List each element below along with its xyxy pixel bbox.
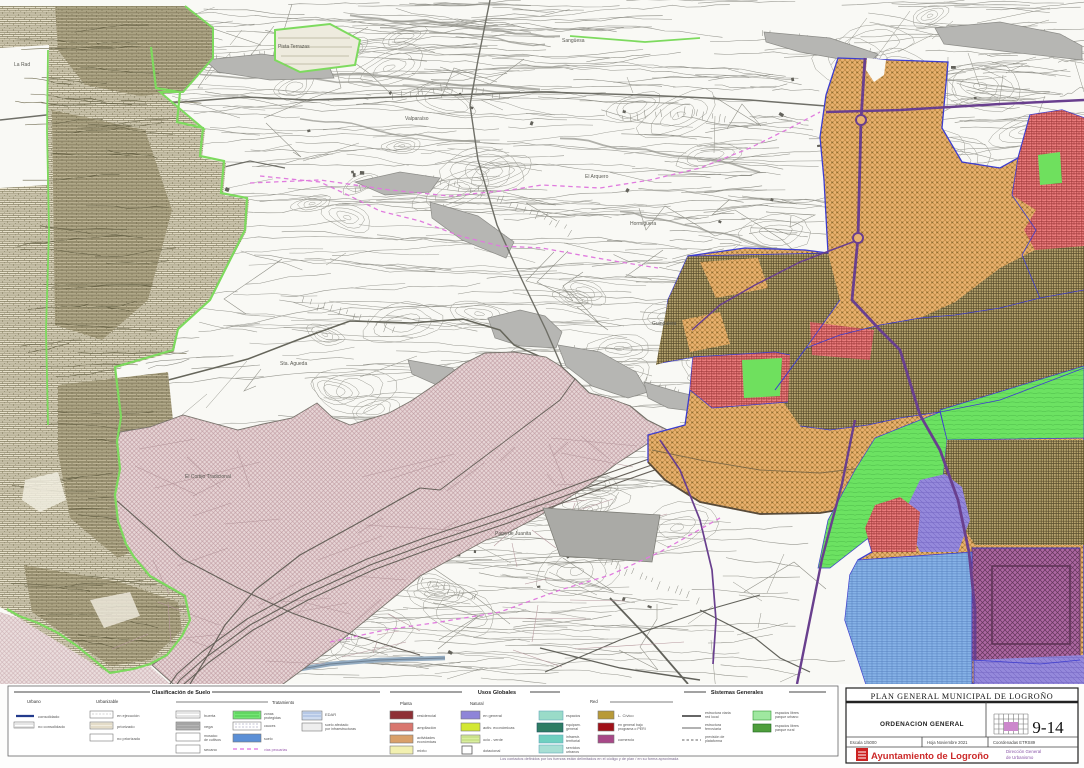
svg-text:ferroviaria: ferroviaria xyxy=(705,727,721,731)
svg-text:parque urbano: parque urbano xyxy=(775,715,798,719)
svg-text:Dirección General: Dirección General xyxy=(1006,749,1041,754)
svg-text:Urbanizable: Urbanizable xyxy=(96,699,119,704)
svg-text:territorial: territorial xyxy=(566,739,580,743)
svg-text:en ejecución: en ejecución xyxy=(117,713,139,718)
svg-text:Escala 1/5000: Escala 1/5000 xyxy=(850,740,877,745)
svg-text:no consolidado: no consolidado xyxy=(38,724,66,729)
svg-text:Tratamiento: Tratamiento xyxy=(272,700,295,705)
svg-text:residencial: residencial xyxy=(417,713,436,718)
svg-text:comercio: comercio xyxy=(618,737,635,742)
svg-text:activ. económicas: activ. económicas xyxy=(483,725,515,730)
svg-text:Natural: Natural xyxy=(470,701,484,706)
svg-text:Los contactos definidos por lo: Los contactos definidos por los fuerzas … xyxy=(500,757,679,761)
svg-text:Clasificación de Suelo: Clasificación de Suelo xyxy=(152,690,211,696)
svg-text:Urbano: Urbano xyxy=(27,699,41,704)
svg-text:Hoja Noviembre 2021: Hoja Noviembre 2021 xyxy=(927,740,968,745)
svg-text:red local: red local xyxy=(705,715,719,719)
svg-text:de cultivos: de cultivos xyxy=(204,738,221,742)
svg-text:cauces: cauces xyxy=(264,724,276,728)
svg-text:ORDENACION GENERAL: ORDENACION GENERAL xyxy=(880,721,964,728)
svg-text:Red: Red xyxy=(590,699,598,704)
svg-text:suelo: suelo xyxy=(264,737,273,741)
svg-text:ocio - verde: ocio - verde xyxy=(483,738,503,742)
svg-text:protegidas: protegidas xyxy=(264,716,281,720)
svg-text:de Urbanismo: de Urbanismo xyxy=(1006,755,1034,760)
svg-text:urbanos: urbanos xyxy=(566,750,579,754)
svg-text:Ayuntamiento de Logroño: Ayuntamiento de Logroño xyxy=(871,751,989,762)
svg-text:PLAN GENERAL MUNICIPAL DE: PLAN GENERAL MUNICIPAL DE LOGROÑO xyxy=(871,691,1054,701)
svg-text:priorizado: priorizado xyxy=(117,724,135,729)
svg-text:plataforma: plataforma xyxy=(705,739,722,743)
svg-text:9-14: 9-14 xyxy=(1032,718,1064,737)
svg-text:Planta: Planta xyxy=(400,701,413,706)
svg-text:dotacional: dotacional xyxy=(483,749,500,753)
svg-text:EDAR: EDAR xyxy=(325,712,336,717)
svg-text:secano: secano xyxy=(204,747,218,752)
svg-text:huerta: huerta xyxy=(204,713,216,718)
svg-text:general: general xyxy=(566,727,578,731)
svg-text:mixto: mixto xyxy=(417,748,427,753)
svg-text:espacios: espacios xyxy=(566,714,580,718)
svg-text:económicas: económicas xyxy=(417,740,436,744)
svg-text:en general: en general xyxy=(483,713,502,718)
svg-text:Coordenadas ETRS89: Coordenadas ETRS89 xyxy=(993,740,1036,745)
svg-text:consolidado: consolidado xyxy=(38,714,60,719)
svg-text:vega: vega xyxy=(204,724,213,729)
svg-text:Usos Globales: Usos Globales xyxy=(478,690,516,696)
svg-text:parque rural: parque rural xyxy=(775,728,795,732)
svg-text:no priorizado: no priorizado xyxy=(117,736,141,741)
svg-text:programa o PERI: programa o PERI xyxy=(618,727,646,731)
svg-text:Sistemas Generales: Sistemas Generales xyxy=(711,690,763,696)
svg-text:L. Cívico: L. Cívico xyxy=(618,713,634,718)
svg-text:ampliación: ampliación xyxy=(417,725,436,730)
svg-text:por infraestructuras: por infraestructuras xyxy=(325,727,356,731)
svg-text:vías pecuarias: vías pecuarias xyxy=(264,748,287,752)
